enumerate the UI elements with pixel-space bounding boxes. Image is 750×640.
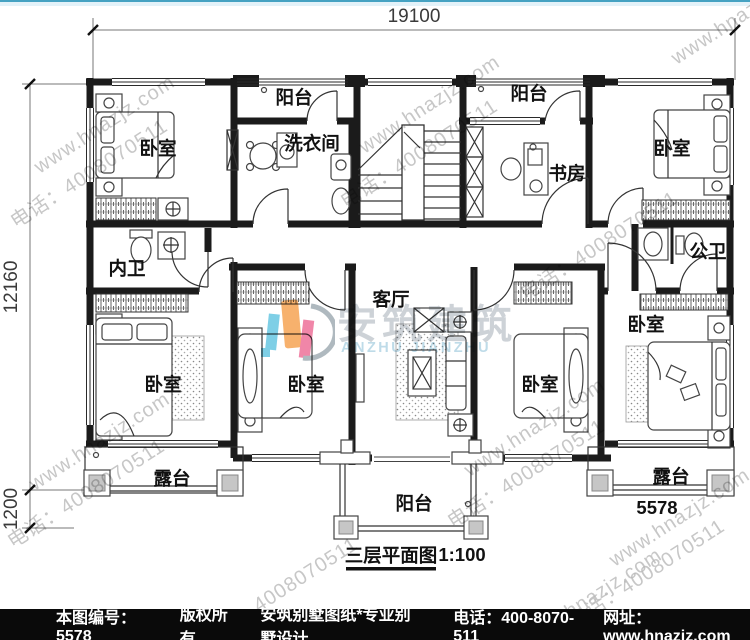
pillar-icon <box>320 440 370 464</box>
label-bedroom-3: 卧室 <box>144 374 181 395</box>
window-top-br2 <box>618 77 712 87</box>
nightstand-icon <box>708 316 730 340</box>
title-underline <box>346 567 436 571</box>
label-balcony-top-left: 阳台 <box>275 87 312 108</box>
door-bedroom-4 <box>305 270 345 310</box>
pillar-icon <box>587 470 613 496</box>
label-balcony-top-right: 阳台 <box>510 83 547 104</box>
wardrobe-icon <box>237 282 309 304</box>
dim-terrace-offset: 1200 <box>1 488 22 530</box>
door-inner-bath <box>172 252 208 287</box>
label-bedroom-2: 卧室 <box>653 138 690 159</box>
coffee-table-icon <box>408 350 436 396</box>
floor-plan-page: 19100 12160 1200 <box>0 0 750 640</box>
sofa-icon <box>446 336 466 410</box>
label-bedroom-4: 卧室 <box>287 374 324 395</box>
side-table-icon <box>448 312 472 332</box>
shower-icon <box>158 232 185 259</box>
window-left-br1 <box>85 108 95 182</box>
label-balcony-bottom: 阳台 <box>395 493 432 514</box>
balcony-bottom <box>320 440 503 539</box>
wardrobe-icon <box>642 200 730 220</box>
table-icon <box>247 142 280 171</box>
footer-website: 网址：www.hnazjz.com <box>603 604 750 640</box>
label-inner-bath: 内卫 <box>108 258 145 279</box>
room-bedroom-3 <box>96 294 204 440</box>
label-bedroom-1: 卧室 <box>139 138 176 159</box>
footer-company: 安筑别墅图纸*专业别墅设计 <box>260 601 426 640</box>
nightstand-icon <box>96 94 122 112</box>
chair-icon <box>501 158 521 180</box>
pillar-icon <box>707 470 734 496</box>
nightstand-icon <box>704 177 730 195</box>
dresser-icon <box>158 198 188 220</box>
label-terrace-right: 露台 <box>652 466 689 487</box>
tv-icon <box>356 354 364 402</box>
window-top-stairs <box>368 77 452 87</box>
pillar-icon <box>217 470 243 496</box>
title-block: 三层平面图 1:100 <box>345 544 486 571</box>
window-left-br3 <box>85 325 95 425</box>
basin-icon <box>332 188 350 214</box>
footer-phone: 电话：400-8070-511 <box>453 604 576 640</box>
sink-icon <box>638 228 668 260</box>
footer-bar: 本图编号：5578 版权所有 安筑别墅图纸*专业别墅设计 电话：400-8070… <box>0 609 750 640</box>
floor-title: 三层平面图 <box>345 545 438 566</box>
door-bedroom-2 <box>608 188 643 224</box>
floor-plan-drawing: 19100 12160 1200 <box>0 0 750 608</box>
bookshelf-icon <box>466 127 483 217</box>
pillar-icon <box>84 470 110 496</box>
sink-icon <box>331 154 351 180</box>
door-bedroom-5 <box>474 270 514 310</box>
window-bottom-br5 <box>505 453 572 463</box>
dim-total-height: 12160 <box>1 261 22 314</box>
window-top-br1 <box>112 77 205 87</box>
footer-doc-number: 本图编号：5578 <box>56 604 153 640</box>
seat-icon <box>414 308 444 332</box>
pillar-icon <box>464 516 488 539</box>
window-study-top <box>470 116 540 126</box>
footer-copyright: 版权所有 <box>180 601 234 640</box>
sliding-door-living-balcony <box>374 457 450 462</box>
room-living <box>356 308 473 436</box>
door-laundry-hall <box>253 189 288 224</box>
label-living-room: 客厅 <box>372 289 409 310</box>
wardrobe-icon <box>96 198 156 220</box>
room-bedroom-4 <box>237 282 312 432</box>
side-table-icon <box>448 414 473 436</box>
wardrobe-icon <box>96 294 188 312</box>
stairs-icon <box>358 125 461 220</box>
plan-number: 5578 <box>636 497 677 518</box>
wardrobe-icon <box>640 294 728 310</box>
dim-total-width: 19100 <box>388 6 441 27</box>
label-laundry: 洗衣间 <box>284 133 340 154</box>
pillar-icon <box>334 516 358 539</box>
scale-label: 1:100 <box>438 544 485 565</box>
label-bedroom-6: 卧室 <box>627 314 664 335</box>
pillar-icon <box>452 440 503 464</box>
room-study <box>501 143 548 195</box>
nightstand-icon <box>96 178 122 196</box>
label-public-bath: 公卫 <box>689 241 726 262</box>
bed-icon <box>648 342 730 430</box>
room-bedroom-5 <box>514 282 588 432</box>
door-study <box>542 178 588 224</box>
wardrobe-icon <box>514 282 572 304</box>
window-bottom-br4 <box>252 453 330 463</box>
label-study: 书房 <box>548 163 585 184</box>
door-balcony-study <box>545 91 580 121</box>
label-bedroom-5: 卧室 <box>521 374 558 395</box>
label-terrace-left: 露台 <box>153 468 190 489</box>
